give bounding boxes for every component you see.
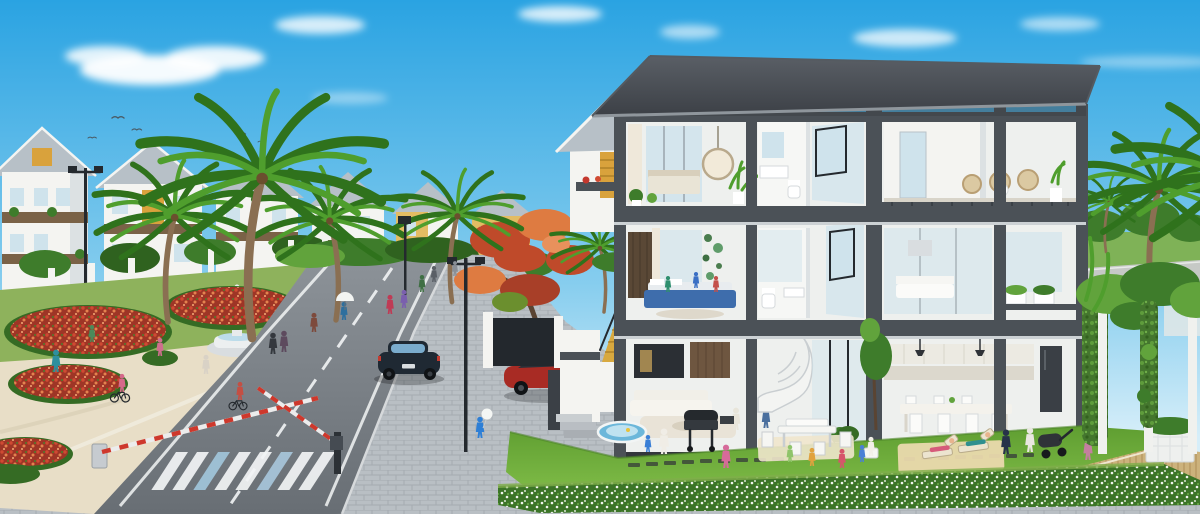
middle-lounge-balcony [884, 228, 1078, 314]
roof [592, 56, 1100, 116]
paddling-pool [598, 422, 646, 442]
scene-svg [0, 0, 1200, 514]
flower-bed [4, 305, 172, 359]
render-canvas [0, 0, 1200, 514]
gate-wall [483, 312, 563, 368]
cutaway-building [592, 56, 1100, 460]
